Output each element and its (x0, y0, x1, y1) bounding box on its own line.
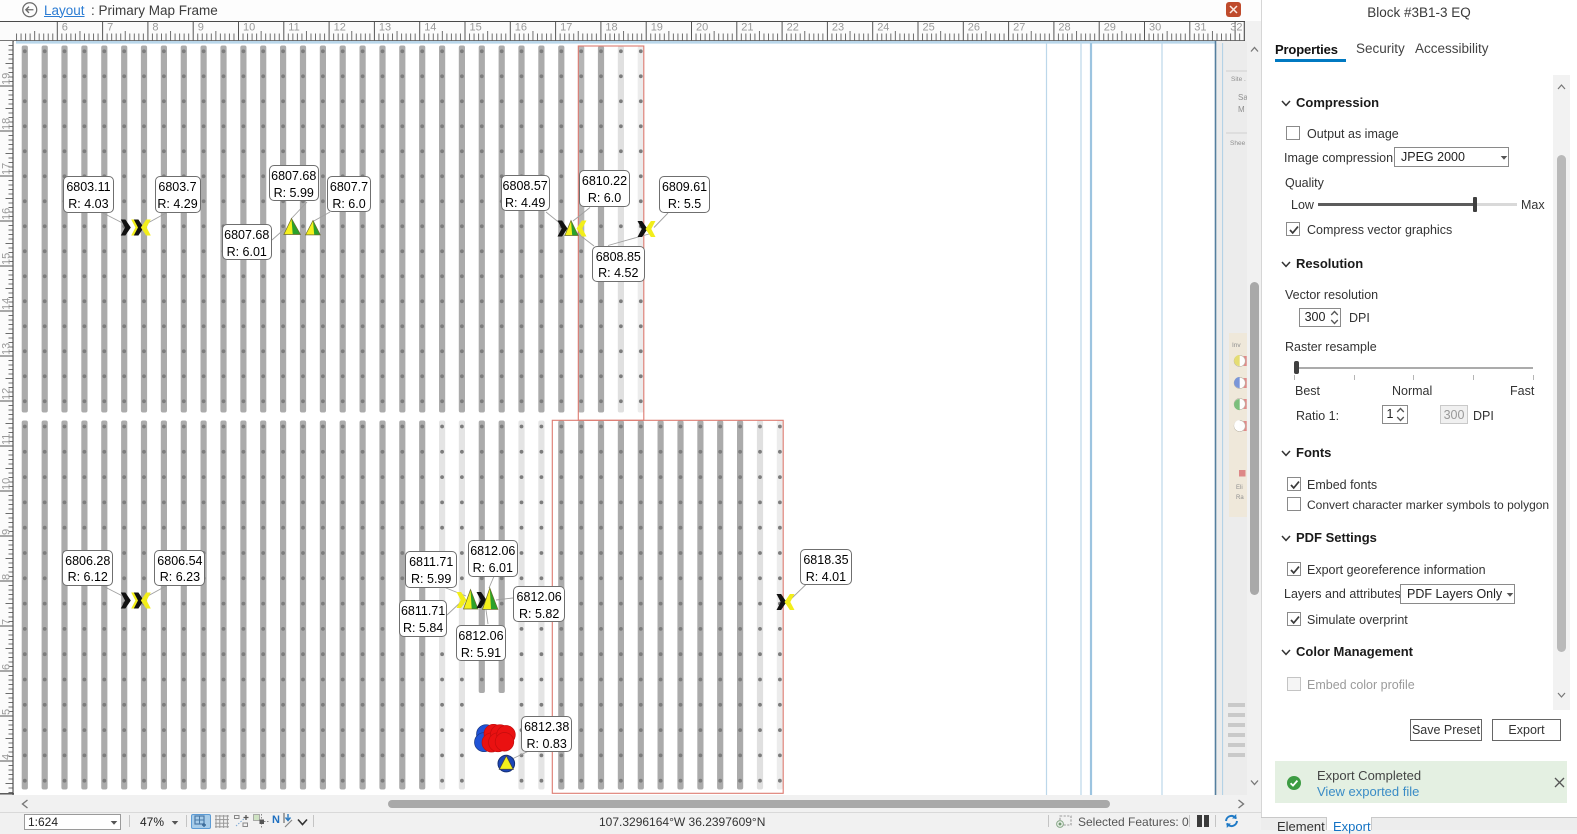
svg-text:9: 9 (1, 529, 13, 535)
svg-text:10: 10 (1, 478, 13, 490)
svg-text:8: 8 (152, 22, 158, 34)
svg-text:10: 10 (243, 22, 255, 34)
svg-text:18: 18 (1, 118, 13, 130)
svg-text:19: 19 (1, 73, 13, 85)
svg-text:14: 14 (424, 22, 436, 34)
svg-text:16: 16 (515, 22, 527, 34)
svg-text:16: 16 (1, 208, 13, 220)
svg-text:11: 11 (288, 22, 299, 34)
svg-text:25: 25 (923, 22, 935, 34)
svg-text:31: 31 (1194, 22, 1206, 34)
svg-text:28: 28 (1058, 22, 1070, 34)
svg-text:32: 32 (1230, 22, 1242, 34)
svg-text:19: 19 (651, 22, 663, 34)
svg-text:12: 12 (1, 388, 13, 400)
svg-text:17: 17 (560, 22, 572, 34)
svg-text:7: 7 (107, 22, 113, 34)
svg-text:8: 8 (1, 574, 13, 580)
svg-text:4: 4 (1, 754, 13, 760)
svg-text:26: 26 (968, 22, 980, 34)
svg-text:15: 15 (1, 253, 13, 265)
svg-text:15: 15 (470, 22, 482, 34)
svg-text:22: 22 (787, 22, 799, 34)
svg-text:11: 11 (1, 434, 13, 445)
svg-text:7: 7 (1, 619, 13, 625)
svg-text:9: 9 (198, 22, 204, 34)
svg-text:20: 20 (696, 22, 708, 34)
svg-text:14: 14 (1, 298, 13, 310)
svg-text:6: 6 (1, 664, 13, 670)
svg-text:27: 27 (1013, 22, 1025, 34)
svg-text:6: 6 (62, 22, 68, 34)
svg-text:18: 18 (605, 22, 617, 34)
svg-text:29: 29 (1104, 22, 1116, 34)
svg-text:23: 23 (832, 22, 844, 34)
svg-text:13: 13 (1, 343, 13, 355)
svg-text:5: 5 (1, 709, 13, 715)
svg-text:21: 21 (741, 22, 753, 34)
svg-text:30: 30 (1149, 22, 1161, 34)
svg-text:17: 17 (1, 163, 13, 175)
svg-text:12: 12 (334, 22, 346, 34)
svg-text:13: 13 (379, 22, 391, 34)
svg-text:24: 24 (877, 22, 889, 34)
